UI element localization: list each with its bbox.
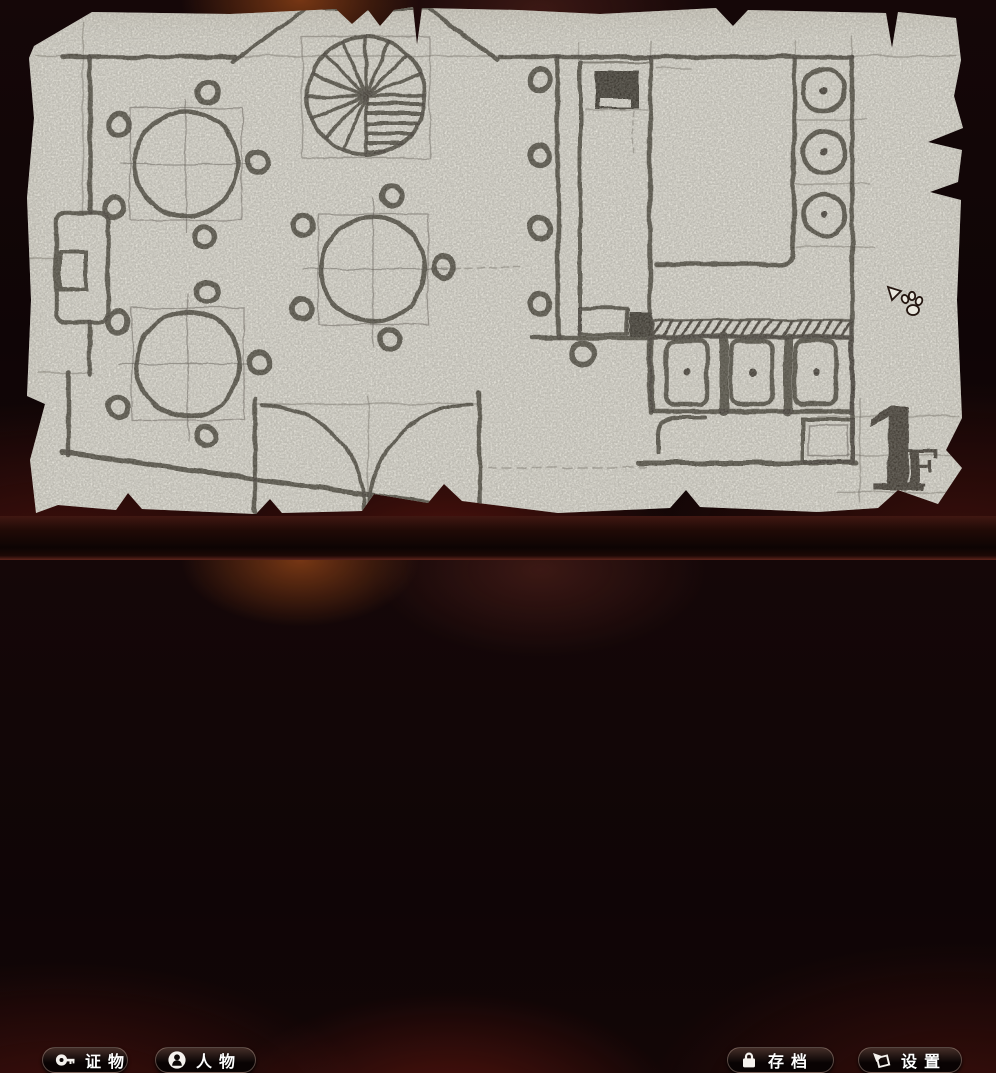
evidence-button[interactable]: 证物 xyxy=(42,1047,128,1073)
pointer-icon xyxy=(870,1050,892,1070)
game-screen: { "map": { "floor_number": "1", "floor_s… xyxy=(0,0,996,560)
evidence-button-label: 证物 xyxy=(85,1048,131,1072)
lock-icon xyxy=(739,1050,759,1070)
save-button-label: 存档 xyxy=(768,1048,814,1072)
characters-button[interactable]: 人物 xyxy=(155,1047,256,1073)
paper-grain-texture xyxy=(0,0,996,560)
settings-button[interactable]: 设置 xyxy=(858,1047,962,1073)
settings-button-label: 设置 xyxy=(901,1048,947,1072)
floorplan-drawing: 1 F xyxy=(0,0,996,560)
save-button[interactable]: 存档 xyxy=(727,1047,834,1073)
person-icon xyxy=(167,1050,187,1070)
characters-button-label: 人物 xyxy=(196,1048,242,1072)
hud-bar: 证物 人物 存档 设置 xyxy=(0,516,996,560)
key-icon xyxy=(54,1050,76,1070)
floorplan-paper: 1 F xyxy=(0,0,996,560)
paw-cursor-icon xyxy=(884,282,928,324)
